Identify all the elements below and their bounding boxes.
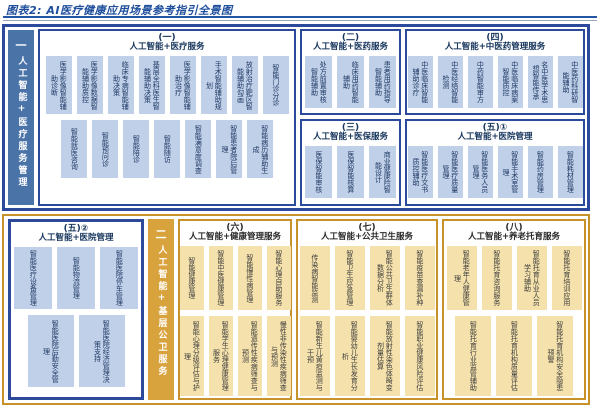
box-hospital-management-2: (五)② 人工智能+医院管理 智能医疗设备管理智能物流管理智能医院停车管理智能医… xyxy=(8,219,144,400)
box-title: 人工智能+中医药管理服务 xyxy=(407,43,583,53)
tile-rows: 医保智能审核医保智能核算商业健康险智能设计 xyxy=(302,146,399,198)
scenario-tile: 医学影像智能辅助治疗 xyxy=(170,56,196,114)
scenario-tile: 医保智能审核 xyxy=(305,146,332,198)
box-head: (二) 人工智能+医药服务 xyxy=(302,33,399,53)
scenario-tile: 智能预问诊 xyxy=(92,120,118,178)
tile-row: 智能心理分级评估与护理智能学生心理健康管理服务智能遗传性疾病筛查与预测慢性非传染… xyxy=(180,316,291,396)
scenario-tile: 智能陪诊 xyxy=(123,120,149,178)
box-head: (三) 人工智能+医保服务 xyxy=(302,123,399,143)
tile-rows: 传染病智能监测智能卫生应急管理智能公共卫生群体数据分析智能疫苗查漏补种智能新生儿… xyxy=(298,246,436,396)
scenario-tile: 智能心理分级评估与护理 xyxy=(180,316,204,396)
region-public-health: (五)② 人工智能+医院管理 智能医疗设备管理智能物流管理智能医院停车管理智能医… xyxy=(2,214,590,405)
scenario-tile: 智能公共卫生群体数据分析 xyxy=(370,246,400,310)
scenario-tile: 智能药房管理 xyxy=(528,146,553,198)
scenario-tile: 智能放射性染色体畸变剂量估算 xyxy=(370,316,400,396)
scenario-tile: 临床用药智能辅助 xyxy=(337,56,364,108)
box-head: (一) 人工智能+医疗服务 xyxy=(40,33,294,53)
scenario-tile: 智能卫生应急管理 xyxy=(335,246,365,310)
scenario-tile: 智能耗材管理 xyxy=(558,146,583,198)
box-hospital-management-1: (五)① 人工智能+医院管理 智能医疗文书质控辅助智能医疗质量管理智能医务人员管… xyxy=(405,119,585,206)
tile-row: 智能就医咨询智能预问诊智能陪诊智能随访智能满意度调查智能患者院后管理智能病历辅助… xyxy=(61,120,273,178)
box-head: (七) 人工智能+公共卫生服务 xyxy=(298,223,436,243)
region-medical-services: 一 人工智能+医疗服务管理 (一) 人工智能+医疗服务 医学影像智能辅助诊断医学… xyxy=(2,24,590,211)
scenario-tile: 中药智能审方 xyxy=(468,56,493,108)
scenario-tile: 处方前置审核智能辅助 xyxy=(305,56,332,108)
scenario-tile: 商业健康险智能设计 xyxy=(369,146,396,198)
scenario-tile: 智能医疗文书质控辅助 xyxy=(408,146,433,198)
scenario-tile: 名中医学术思想智能传承 xyxy=(528,56,553,108)
scenario-tile: 手术智能辅助规划 xyxy=(201,56,227,114)
box-public-health-service: (七) 人工智能+公共卫生服务 传染病智能监测智能卫生应急管理智能公共卫生群体数… xyxy=(296,219,438,400)
scenario-tile: 慢性非传染性疾病筛查与预测 xyxy=(267,316,291,396)
tile-row: 医保智能审核医保智能核算商业健康险智能设计 xyxy=(305,146,396,198)
scenario-tile: 智能婴幼儿生长发育分析 xyxy=(335,316,365,396)
scenario-tile: 智能托育培训应用 xyxy=(552,246,582,310)
tile-row: 处方前置审核智能辅助临床用药智能辅助患者用药指导智能辅助 xyxy=(305,56,396,108)
box-head: (四) 人工智能+中医药管理服务 xyxy=(407,33,583,53)
scenario-tile: 智能满意度调查 xyxy=(185,120,211,178)
box-title: 人工智能+医药服务 xyxy=(302,43,399,53)
scenario-tile: 中医临床智能辅助诊疗 xyxy=(408,56,433,108)
tile-rows: 智能健康管理智能中医健康管理智能慢性病管理智能心理自助服务智能心理分级评估与护理… xyxy=(180,246,290,396)
scenario-tile: 临床专病智能辅助决策 xyxy=(108,56,134,114)
box-title: 人工智能+健康管理服务 xyxy=(180,233,290,243)
tile-row: 传染病智能监测智能卫生应急管理智能公共卫生群体数据分析智能疫苗查漏补种 xyxy=(300,246,435,310)
category-sidebar-2: 二 人工智能+基层公卫服务 xyxy=(148,219,174,400)
box-title: 人工智能+医疗服务 xyxy=(40,43,294,53)
scenario-tile: 医保智能核算 xyxy=(337,146,364,198)
scenario-tile: 智能医务人员管理 xyxy=(468,146,493,198)
box-title: 人工智能+公共卫生服务 xyxy=(298,233,436,243)
tile-row: 智能健康管理智能中医健康管理智能慢性病管理智能心理自助服务 xyxy=(180,246,291,310)
category-2-label: 人工智能+基层公卫服务 xyxy=(157,245,166,378)
tile-row: 智能老年人健康管理智能托育咨询服务智能托育从业人员学习辅助智能托育培训应用 xyxy=(447,246,582,310)
tile-row: 智能医疗文书质控辅助智能医疗质量管理智能医务人员管理智能手术室管理智能药房管理智… xyxy=(408,146,583,198)
scenario-tile: 智能疫苗查漏补种 xyxy=(405,246,435,310)
scenario-tile: 智能医疗质量管理 xyxy=(438,146,463,198)
category-1-label: 人工智能+医疗服务管理 xyxy=(17,56,26,189)
scenario-tile: 智能托育从业人员学习辅助 xyxy=(517,246,547,310)
tile-row: 智能托育行业监管辅助智能托育机构质量评估智能托育机构安全隐患预警 xyxy=(455,316,573,396)
tile-row: 医学影像智能辅助诊断医学影像数据智能辅助质控临床专病智能辅助决策基层全科医生智能… xyxy=(46,56,289,114)
scenario-tile: 患者用药指导智能辅助 xyxy=(369,56,396,108)
category-2-number: 二 xyxy=(156,226,167,242)
box-health-management-service: (六) 人工智能+健康管理服务 智能健康管理智能中医健康管理智能慢性病管理智能心… xyxy=(178,219,292,400)
tile-rows: 处方前置审核智能辅助临床用药智能辅助患者用药指导智能辅助 xyxy=(302,56,399,108)
title-underline xyxy=(3,16,597,21)
scenario-tile: 智能手术室管理 xyxy=(498,146,523,198)
box-medical-service: (一) 人工智能+医疗服务 医学影像智能辅助诊断医学影像数据智能辅助质控临床专病… xyxy=(38,29,296,206)
scenario-tile: 医学影像智能辅助诊断 xyxy=(46,56,72,114)
scenario-tile: 传染病智能监测 xyxy=(300,246,330,310)
scenario-tile: 智能职业健康风险评估 xyxy=(405,316,435,396)
scenario-tile: 智能就医咨询 xyxy=(61,120,87,178)
scenario-tile: 智能学生心理健康管理服务 xyxy=(209,316,233,396)
tile-row: 智能医院后勤安全管理智能医院经济管理决策支持 xyxy=(28,315,125,387)
category-sidebar-1: 一 人工智能+医疗服务管理 xyxy=(8,30,34,205)
category-1-number: 一 xyxy=(16,37,27,53)
figure-page: 图表2: AI医疗健康应用场景参考指引全景图 一 人工智能+医疗服务管理 (一)… xyxy=(0,0,600,410)
scenario-tile: 中医临床病案智能质控 xyxy=(498,56,523,108)
box-tcm-management-service: (四) 人工智能+中医药管理服务 中医临床智能辅助诊疗中医经络智能检测中药智能审… xyxy=(405,29,585,115)
scenario-tile: 智能随访 xyxy=(154,120,180,178)
box-head: (五)① 人工智能+医院管理 xyxy=(407,123,583,143)
tile-rows: 智能医疗设备管理智能物流管理智能医院停车管理智能医院后勤安全管理智能医院经济管理… xyxy=(11,247,141,387)
scenario-tile: 智能医疗设备管理 xyxy=(14,247,52,309)
box-title: 人工智能+医院管理 xyxy=(407,133,583,143)
scenario-tile: 智能托育机构质量评估 xyxy=(496,316,532,396)
scenario-tile: 智能门诊分诊 xyxy=(263,56,289,114)
scenario-tile: 智能托育机构安全隐患预警 xyxy=(537,316,573,396)
scenario-tile: 智能病历辅助生成 xyxy=(247,120,273,178)
scenario-tile: 智能托育行业监管辅助 xyxy=(455,316,491,396)
scenario-tile: 智能医院停车管理 xyxy=(100,247,138,309)
scenario-tile: 智能托育咨询服务 xyxy=(482,246,512,310)
scenario-tile: 智能医院经济管理决策支持 xyxy=(79,315,125,387)
tile-rows: 智能老年人健康管理智能托育咨询服务智能托育从业人员学习辅助智能托育培训应用智能托… xyxy=(444,246,584,396)
scenario-tile: 智能医院后勤安全管理 xyxy=(28,315,74,387)
scenario-tile: 智能患者院后管理 xyxy=(216,120,242,178)
scenario-tile: 医学影像数据智能辅助质控 xyxy=(77,56,103,114)
scenario-tile: 智能健康管理 xyxy=(180,246,204,310)
box-title: 人工智能+医院管理 xyxy=(11,234,141,244)
scenario-tile: 智能新生儿黄疸监测与干预 xyxy=(300,316,330,396)
scenario-tile: 智能遗传性疾病筛查与预测 xyxy=(238,316,262,396)
tile-rows: 医学影像智能辅助诊断医学影像数据智能辅助质控临床专病智能辅助决策基层全科医生智能… xyxy=(40,56,294,178)
scenario-tile: 智能心理自助服务 xyxy=(267,246,291,310)
tile-row: 智能新生儿黄疸监测与干预智能婴幼儿生长发育分析智能放射性染色体畸变剂量估算智能职… xyxy=(300,316,435,396)
tile-row: 中医临床智能辅助诊疗中医经络智能检测中药智能审方中医临床病案智能质控名中医学术思… xyxy=(408,56,583,108)
scenario-tile: 放射治疗靶区智能辅助勾画 xyxy=(232,56,258,114)
box-title: 人工智能+养老托育服务 xyxy=(444,233,584,243)
box-head: (五)② 人工智能+医院管理 xyxy=(11,224,141,244)
box-title: 人工智能+医保服务 xyxy=(302,133,399,143)
tile-row: 智能医疗设备管理智能物流管理智能医院停车管理 xyxy=(14,247,138,309)
scenario-tile: 中医经络智能检测 xyxy=(438,56,463,108)
tile-rows: 智能医疗文书质控辅助智能医疗质量管理智能医务人员管理智能手术室管理智能药房管理智… xyxy=(407,146,583,198)
box-eldercare-childcare-service: (八) 人工智能+养老托育服务 智能老年人健康管理智能托育咨询服务智能托育从业人… xyxy=(442,219,586,400)
box-head: (六) 人工智能+健康管理服务 xyxy=(180,223,290,243)
scenario-tile: 智能老年人健康管理 xyxy=(447,246,477,310)
scenario-tile: 基层全科医生智能辅助决策 xyxy=(139,56,165,114)
tile-rows: 中医临床智能辅助诊疗中医经络智能检测中药智能审方中医临床病案智能质控名中医学术思… xyxy=(407,56,583,108)
box-pharmacy-service: (二) 人工智能+医药服务 处方前置审核智能辅助临床用药智能辅助患者用药指导智能… xyxy=(300,29,401,115)
scenario-tile: 中医药科研智能辅助 xyxy=(558,56,583,108)
scenario-tile: 智能中医健康管理 xyxy=(209,246,233,310)
scenario-tile: 智能物流管理 xyxy=(57,247,95,309)
box-head: (八) 人工智能+养老托育服务 xyxy=(444,223,584,243)
scenario-tile: 智能慢性病管理 xyxy=(238,246,262,310)
box-insurance-service: (三) 人工智能+医保服务 医保智能审核医保智能核算商业健康险智能设计 xyxy=(300,119,401,206)
